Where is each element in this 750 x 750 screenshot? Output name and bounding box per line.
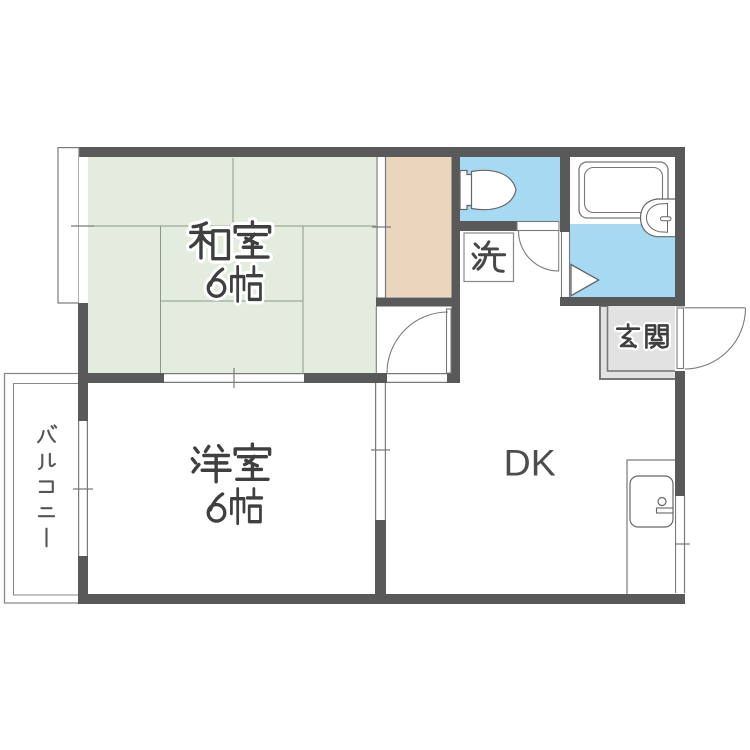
svg-text:DK: DK xyxy=(504,442,556,484)
